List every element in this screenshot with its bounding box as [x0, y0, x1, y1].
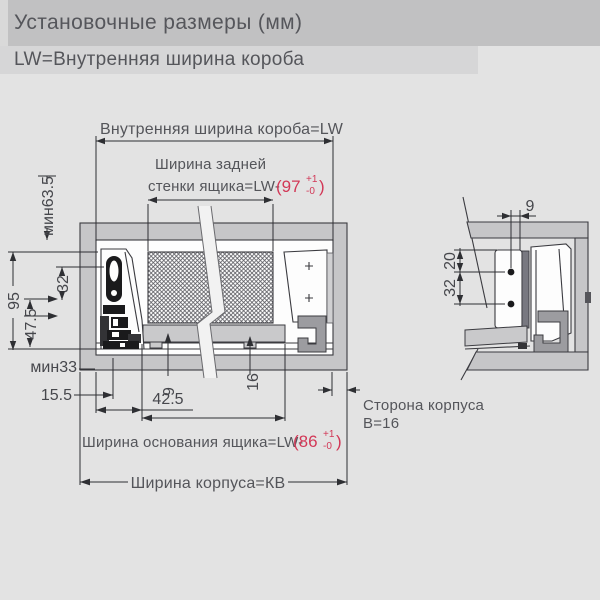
screw-hole: [508, 301, 515, 308]
label-cabinet-side-2: В=16: [363, 415, 399, 432]
drawer-base-plate: [143, 325, 285, 342]
dim-32-side: 32: [442, 279, 459, 297]
back-tolerance-value: (97: [276, 177, 301, 196]
cabinet-bottom-band: [467, 352, 588, 370]
back-tolerance-close: ): [319, 177, 325, 196]
screenshot-root: { "header": { "title": "Установочные раз…: [0, 0, 600, 600]
back-panel-bracket: [495, 250, 522, 328]
front-view: [80, 206, 347, 378]
dim-95: 95: [6, 292, 23, 310]
base-tolerance-value: (86: [293, 432, 318, 451]
label-base-width: Ширина основания ящика=LW-: [82, 434, 303, 451]
technical-drawing: Внутренняя ширина короба=LW Ширина задне…: [0, 0, 600, 600]
screw-hole: [508, 269, 515, 276]
label-cabinet-side-1: Сторона корпуса: [363, 397, 485, 414]
back-tolerance-sub: -0: [306, 186, 315, 197]
dim-min-63-5: мин63.5: [40, 176, 57, 236]
back-tolerance-sup: +1: [306, 174, 318, 185]
dim-47-5: 47.5: [23, 308, 40, 339]
dim-16-front: 16: [245, 373, 262, 391]
base-tolerance-close: ): [336, 432, 342, 451]
dim-9-side: 9: [526, 198, 535, 215]
label-inner-width: Внутренняя ширина короба=LW: [100, 121, 344, 138]
back-panel-edge: [522, 251, 529, 328]
label-back-wall-1: Ширина задней: [155, 156, 266, 173]
base-tolerance-sub: -0: [323, 441, 332, 452]
drawer-base-side: [465, 326, 527, 346]
shelf-pin: [585, 292, 591, 303]
cabinet-top-band: [467, 222, 588, 238]
wall-strip: [327, 253, 333, 323]
dim-min-33: мин33: [30, 359, 77, 376]
section-cut-line: [463, 197, 487, 308]
base-foot: [150, 342, 162, 348]
label-back-wall-2: стенки ящика=LW-: [148, 178, 280, 195]
dim-9-front: 9: [161, 387, 178, 396]
label-cabinet-width: Ширина корпуса=КВ: [131, 475, 286, 492]
base-tab: [518, 343, 527, 349]
dim-20-side: 20: [442, 252, 459, 270]
base-tolerance-sup: +1: [323, 429, 335, 440]
dim-32-front: 32: [55, 275, 72, 293]
dim-15-5: 15.5: [41, 387, 72, 404]
side-view: [461, 197, 591, 380]
